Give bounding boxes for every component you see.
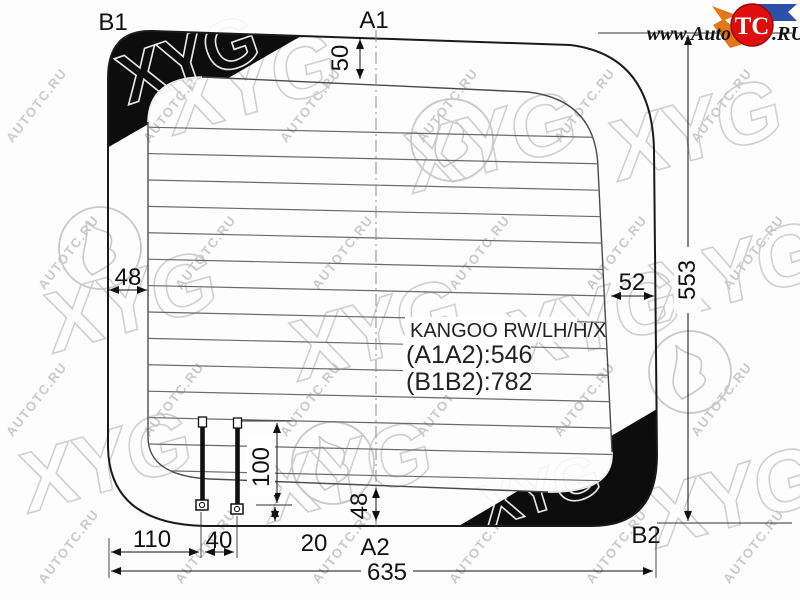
dim-label-left-offset: 110	[133, 526, 171, 553]
glass-dim-a-text: (A1A2):546	[406, 341, 532, 369]
diagram-canvas: AUTOTC.RUAUTOTC.RUAUTOTC.RUAUTOTC.RUAUTO…	[0, 0, 800, 600]
point-label-a1: A1	[359, 7, 388, 34]
logo-ru-text: .RU	[772, 23, 800, 45]
dim-label-left-inset: 48	[115, 264, 142, 291]
point-label-b1: B1	[98, 9, 127, 36]
dim-label-right-inset: 52	[619, 269, 646, 296]
dim-label-bolt-spacing: 40	[206, 527, 233, 554]
logo-tc-text: TC	[735, 13, 770, 40]
point-label-b2: B2	[631, 522, 660, 549]
dim-label-height: 553	[674, 260, 701, 300]
glass-diagram-page: AUTOTC.RUAUTOTC.RUAUTOTC.RUAUTOTC.RUAUTO…	[0, 0, 800, 600]
logo-www-text: www.Auto	[647, 23, 731, 45]
dim-label-bolt-length: 100	[248, 447, 275, 487]
dim-label-width: 635	[367, 559, 407, 586]
point-label-a2: A2	[360, 534, 389, 561]
dim-label-bottom-inset: 48	[346, 493, 373, 520]
glass-dim-b-text: (B1B2):782	[406, 368, 532, 396]
glass-model-text: KANGOO RW/LH/H/X	[410, 320, 606, 342]
dim-label-top-inset: 50	[327, 45, 354, 72]
dim-label-extra-offset: 20	[301, 530, 328, 557]
